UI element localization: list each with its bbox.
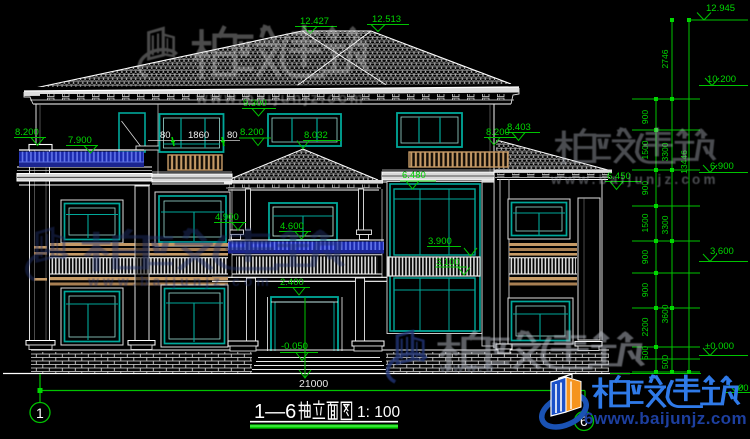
svg-text:10.200: 10.200 bbox=[707, 74, 736, 85]
svg-text:8.200: 8.200 bbox=[240, 127, 264, 138]
svg-text:80: 80 bbox=[227, 130, 238, 141]
svg-text:900: 900 bbox=[640, 250, 650, 264]
svg-text:80: 80 bbox=[160, 130, 171, 141]
svg-text:3.100: 3.100 bbox=[436, 257, 460, 268]
svg-text:3300: 3300 bbox=[660, 215, 670, 234]
svg-text:2200: 2200 bbox=[640, 317, 650, 336]
svg-text:4.900: 4.900 bbox=[215, 212, 239, 223]
svg-text:12.513: 12.513 bbox=[372, 14, 401, 25]
svg-text:6www.baijunjz.com: 6www.baijunjz.com bbox=[584, 409, 747, 428]
svg-text:2746: 2746 bbox=[660, 49, 670, 68]
svg-text:1: 100: 1: 100 bbox=[357, 404, 400, 421]
svg-text:1500: 1500 bbox=[640, 213, 650, 232]
svg-text:8.032: 8.032 bbox=[304, 130, 328, 141]
svg-text:6.900: 6.900 bbox=[710, 161, 734, 172]
svg-text:3.900: 3.900 bbox=[428, 236, 452, 247]
svg-text:8.200: 8.200 bbox=[486, 127, 510, 138]
svg-text:7.900: 7.900 bbox=[68, 135, 92, 146]
svg-text:www.baijunjz.com: www.baijunjz.com bbox=[195, 90, 365, 107]
svg-text:900: 900 bbox=[640, 110, 650, 124]
svg-text:±0.000: ±0.000 bbox=[705, 341, 734, 352]
svg-text:2.400: 2.400 bbox=[280, 277, 304, 288]
svg-text:3.600: 3.600 bbox=[710, 246, 734, 257]
svg-text:1—6: 1—6 bbox=[254, 401, 296, 423]
svg-text:500: 500 bbox=[660, 355, 670, 369]
svg-text:www.b: www.b bbox=[439, 360, 496, 375]
svg-text:1: 1 bbox=[36, 405, 44, 421]
svg-text:8.403: 8.403 bbox=[507, 122, 531, 133]
svg-text:-0.050: -0.050 bbox=[281, 341, 308, 352]
svg-text:1500: 1500 bbox=[640, 140, 650, 159]
svg-text:900: 900 bbox=[640, 283, 650, 297]
svg-text:www.baijunjz.com: www.baijunjz.com bbox=[550, 172, 719, 187]
svg-text:www.baijunjz.com: www.baijunjz.com bbox=[87, 273, 273, 289]
svg-text:3600: 3600 bbox=[660, 304, 670, 323]
svg-text:1860: 1860 bbox=[188, 130, 209, 141]
svg-text:12.945: 12.945 bbox=[706, 3, 735, 14]
svg-text:6.480: 6.480 bbox=[402, 170, 426, 181]
svg-text:8.200: 8.200 bbox=[15, 127, 39, 138]
svg-text:21000: 21000 bbox=[299, 378, 328, 390]
